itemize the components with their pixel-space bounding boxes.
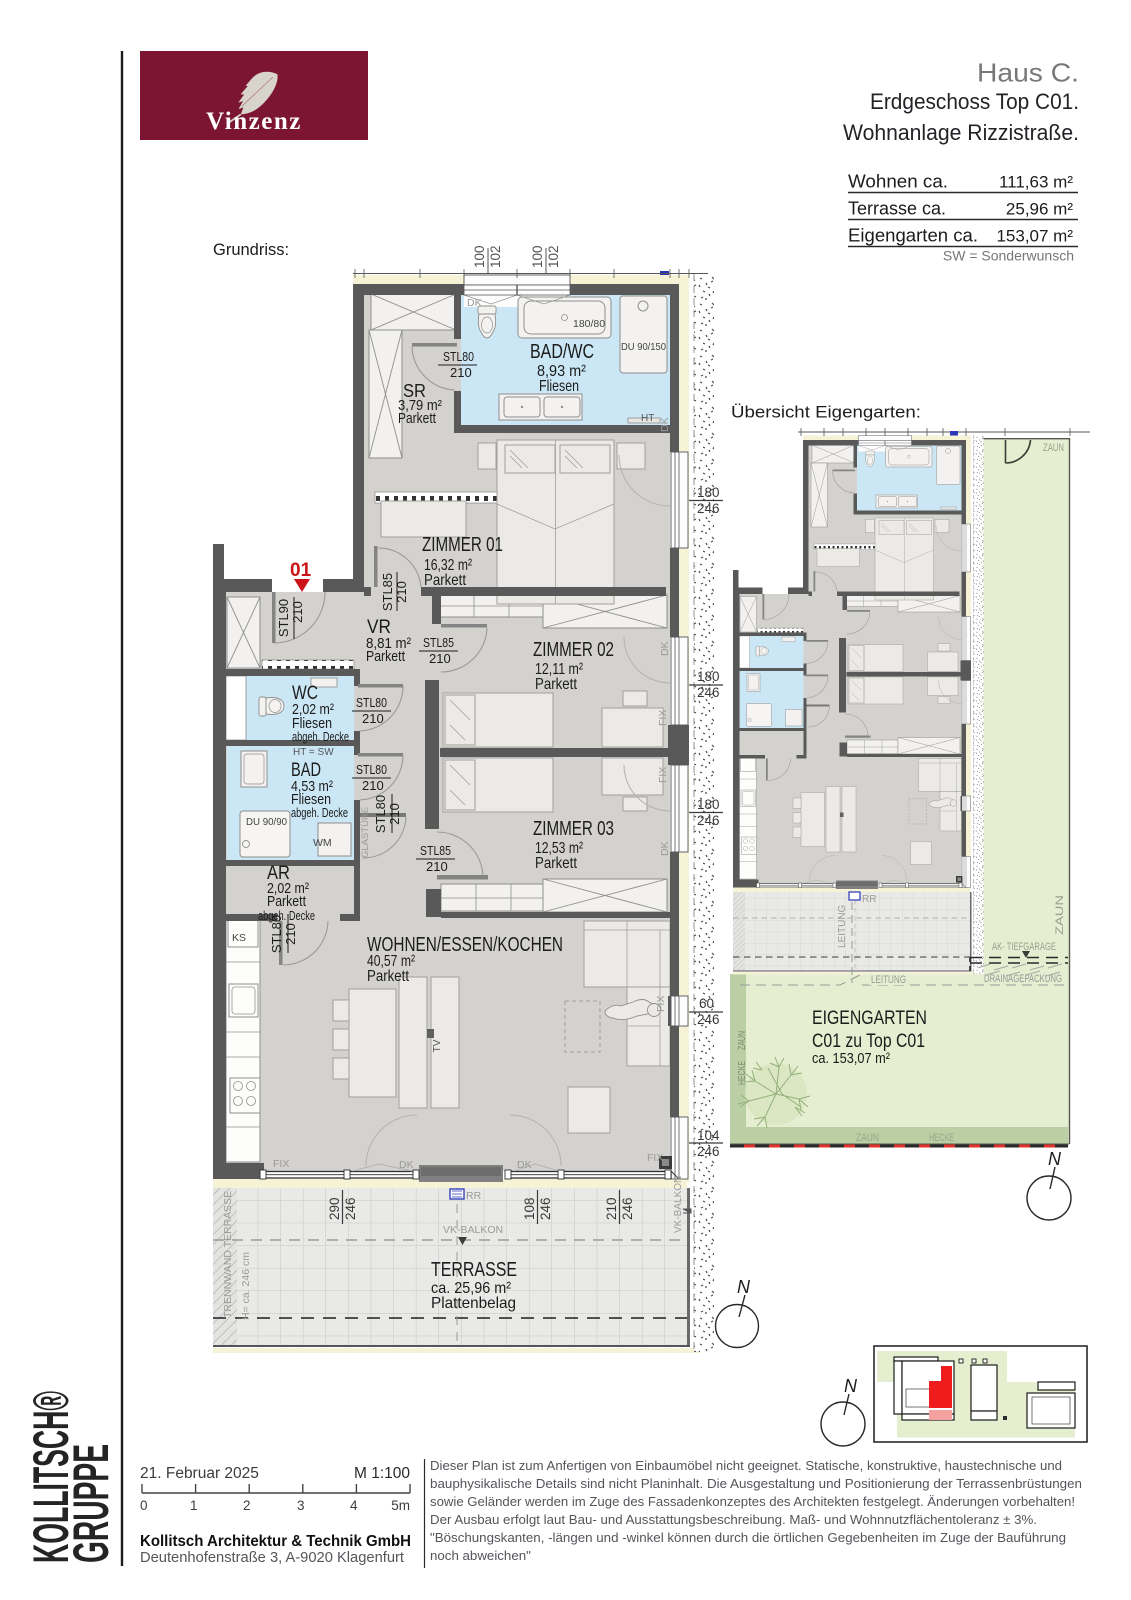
svg-text:246: 246 xyxy=(697,685,720,700)
svg-text:ZIMMER 01: ZIMMER 01 xyxy=(422,534,503,556)
svg-text:noch abweichen": noch abweichen" xyxy=(430,1548,531,1563)
svg-text:RR: RR xyxy=(466,1190,482,1202)
svg-text:180: 180 xyxy=(697,485,720,500)
svg-text:Parkett: Parkett xyxy=(367,968,409,985)
svg-text:Kollitsch Architektur & Techni: Kollitsch Architektur & Technik GmbH xyxy=(140,1533,411,1550)
svg-text:210: 210 xyxy=(450,365,472,380)
svg-text:ZAUN: ZAUN xyxy=(737,1031,748,1050)
svg-text:WM: WM xyxy=(313,837,332,849)
svg-text:DRAINAGEPACKUNG: DRAINAGEPACKUNG xyxy=(984,973,1062,985)
svg-text:DU 90/90: DU 90/90 xyxy=(246,817,287,828)
svg-text:104: 104 xyxy=(697,1128,720,1143)
svg-text:N: N xyxy=(844,1376,858,1396)
svg-text:3: 3 xyxy=(297,1498,305,1513)
svg-text:180: 180 xyxy=(697,797,720,812)
svg-text:Erdgeschoss Top C01.: Erdgeschoss Top C01. xyxy=(870,89,1079,114)
svg-text:N: N xyxy=(1048,1149,1062,1169)
svg-text:SW = Sonderwunsch: SW = Sonderwunsch xyxy=(943,248,1074,264)
svg-text:ZAUN: ZAUN xyxy=(1054,895,1066,935)
svg-text:2: 2 xyxy=(243,1498,251,1513)
svg-text:210: 210 xyxy=(362,778,384,793)
svg-text:246: 246 xyxy=(620,1197,635,1220)
svg-text:Parkett: Parkett xyxy=(424,572,466,589)
svg-text:ca. 153,07 m²: ca. 153,07 m² xyxy=(812,1050,890,1067)
svg-text:60: 60 xyxy=(699,996,714,1011)
svg-text:BAD/WC: BAD/WC xyxy=(530,341,594,363)
svg-text:246: 246 xyxy=(538,1197,553,1220)
svg-text:102: 102 xyxy=(546,245,561,268)
svg-text:DK: DK xyxy=(659,641,671,656)
svg-text:VK-BALKON: VK-BALKON xyxy=(673,1176,684,1233)
svg-text:180/80: 180/80 xyxy=(573,318,605,330)
svg-text:DK: DK xyxy=(399,1159,414,1171)
svg-text:Wohnanlage Rizzistraße.: Wohnanlage Rizzistraße. xyxy=(843,120,1079,145)
svg-text:STL85: STL85 xyxy=(423,635,454,650)
svg-text:TV: TV xyxy=(432,1039,443,1052)
svg-text:STL90: STL90 xyxy=(276,599,291,637)
svg-text:DU 90/150: DU 90/150 xyxy=(621,342,666,353)
svg-text:GRUPPE: GRUPPE xyxy=(63,1444,119,1563)
svg-text:Parkett: Parkett xyxy=(398,411,436,427)
svg-text:210: 210 xyxy=(394,581,409,603)
svg-text:Der Ausbau erfolgt laut Bau- u: Der Ausbau erfolgt laut Bau- und Ausstat… xyxy=(430,1512,1037,1527)
svg-text:H= ca. 246 cm: H= ca. 246 cm xyxy=(240,1252,252,1320)
svg-text:210: 210 xyxy=(426,859,448,874)
svg-text:Parkett: Parkett xyxy=(535,855,577,872)
svg-text:TERRASSE: TERRASSE xyxy=(431,1259,517,1281)
svg-text:100: 100 xyxy=(530,245,545,268)
svg-text:bauphysikalische Details sind: bauphysikalische Details sind nicht Plan… xyxy=(430,1476,1082,1491)
svg-text:0: 0 xyxy=(140,1498,148,1513)
svg-text:153,07 m²: 153,07 m² xyxy=(996,227,1073,246)
svg-text:M 1:100: M 1:100 xyxy=(354,1465,410,1482)
svg-text:Terrasse ca.: Terrasse ca. xyxy=(848,198,946,219)
svg-text:FIX: FIX xyxy=(657,767,669,783)
svg-text:Vinzenz: Vinzenz xyxy=(206,108,302,135)
svg-text:180: 180 xyxy=(697,669,720,684)
svg-text:4: 4 xyxy=(350,1498,358,1513)
svg-text:Haus C.: Haus C. xyxy=(977,58,1079,88)
svg-text:246: 246 xyxy=(697,1012,720,1027)
svg-text:ZAUN: ZAUN xyxy=(1043,442,1064,454)
svg-text:STL80: STL80 xyxy=(356,762,387,777)
svg-text:Parkett: Parkett xyxy=(535,676,577,693)
svg-text:STL80: STL80 xyxy=(356,695,387,710)
svg-text:246: 246 xyxy=(343,1197,358,1220)
svg-text:DK: DK xyxy=(659,841,671,856)
svg-text:FIX: FIX xyxy=(657,710,669,726)
svg-text:DK: DK xyxy=(659,417,671,432)
svg-text:ZAUN: ZAUN xyxy=(856,1132,879,1144)
svg-text:246: 246 xyxy=(697,813,720,828)
svg-text:FIX: FIX xyxy=(655,996,667,1012)
svg-text:1: 1 xyxy=(190,1498,198,1513)
svg-text:DK: DK xyxy=(467,297,482,309)
svg-text:Eigengarten ca.: Eigengarten ca. xyxy=(848,225,978,246)
svg-text:RR: RR xyxy=(862,894,876,905)
svg-text:HT = SW: HT = SW xyxy=(293,747,334,758)
svg-text:Dieser Plan ist zum Anfertigen: Dieser Plan ist zum Anfertigen von Einba… xyxy=(430,1458,1062,1473)
svg-text:Deutenhofenstraße 3, A-9020 K: Deutenhofenstraße 3, A-9020 Klagenfurt xyxy=(140,1550,404,1566)
svg-text:STL85: STL85 xyxy=(420,843,451,858)
svg-text:HT: HT xyxy=(641,413,654,424)
svg-text:EIGENGARTEN: EIGENGARTEN xyxy=(812,1008,927,1029)
svg-text:5m: 5m xyxy=(391,1498,410,1513)
svg-text:Wohnen ca.: Wohnen ca. xyxy=(848,171,948,192)
svg-text:abgeh. Decke: abgeh. Decke xyxy=(291,805,348,820)
svg-text:210: 210 xyxy=(362,711,384,726)
svg-text:210: 210 xyxy=(429,651,451,666)
svg-text:TRENNWAND TERRASSE: TRENNWAND TERRASSE xyxy=(222,1191,234,1318)
svg-text:ZIMMER 03: ZIMMER 03 xyxy=(533,818,614,840)
svg-text:Plattenbelag: Plattenbelag xyxy=(431,1295,516,1312)
svg-text:KS: KS xyxy=(232,932,246,944)
svg-text:Fliesen: Fliesen xyxy=(539,378,579,395)
svg-text:210: 210 xyxy=(290,601,305,623)
svg-text:C01 zu Top C01: C01 zu Top C01 xyxy=(812,1031,925,1052)
svg-text:VK-BALKON: VK-BALKON xyxy=(443,1224,503,1236)
svg-text:111,63 m²: 111,63 m² xyxy=(999,173,1073,192)
svg-text:sowie Geländer werden im Zuge: sowie Geländer werden im Zuge des Fassad… xyxy=(430,1494,1075,1509)
svg-text:N: N xyxy=(737,1277,751,1297)
svg-text:FIX: FIX xyxy=(647,1152,663,1164)
svg-text:290: 290 xyxy=(327,1197,342,1220)
svg-text:25,96 m²: 25,96 m² xyxy=(1006,200,1073,219)
svg-text:abgeh. Decke: abgeh. Decke xyxy=(292,729,349,744)
svg-text:210: 210 xyxy=(604,1197,619,1220)
svg-text:108: 108 xyxy=(522,1197,537,1220)
svg-text:GLASTÜRE: GLASTÜRE xyxy=(360,807,371,858)
svg-text:"Böschungskanten, -längen und: "Böschungskanten, -längen und -winkel kö… xyxy=(430,1530,1066,1545)
svg-text:STL80: STL80 xyxy=(269,915,284,953)
svg-text:Grundriss:: Grundriss: xyxy=(213,241,289,259)
svg-text:LEITUNG: LEITUNG xyxy=(837,904,848,948)
svg-text:Parkett: Parkett xyxy=(366,648,406,665)
svg-text:HECKE: HECKE xyxy=(929,1132,954,1144)
svg-text:ZIMMER 02: ZIMMER 02 xyxy=(533,639,614,661)
svg-text:210: 210 xyxy=(387,803,402,825)
svg-text:STL85: STL85 xyxy=(380,573,395,611)
svg-text:STL80: STL80 xyxy=(373,795,388,833)
svg-text:abgeh. Decke: abgeh. Decke xyxy=(258,908,315,923)
svg-text:FIX: FIX xyxy=(273,1158,289,1170)
svg-text:246: 246 xyxy=(697,1144,720,1159)
svg-text:Übersicht Eigengarten:: Übersicht Eigengarten: xyxy=(731,403,921,422)
svg-text:STL80: STL80 xyxy=(443,349,474,364)
svg-text:21. Februar 2025: 21. Februar 2025 xyxy=(140,1465,259,1482)
svg-text:01: 01 xyxy=(290,560,312,581)
svg-text:210: 210 xyxy=(283,923,298,945)
svg-text:LEITUNG: LEITUNG xyxy=(871,974,906,986)
svg-text:DK: DK xyxy=(517,1159,532,1171)
svg-text:246: 246 xyxy=(697,501,720,516)
svg-text:102: 102 xyxy=(488,245,503,268)
svg-text:100: 100 xyxy=(472,245,487,268)
